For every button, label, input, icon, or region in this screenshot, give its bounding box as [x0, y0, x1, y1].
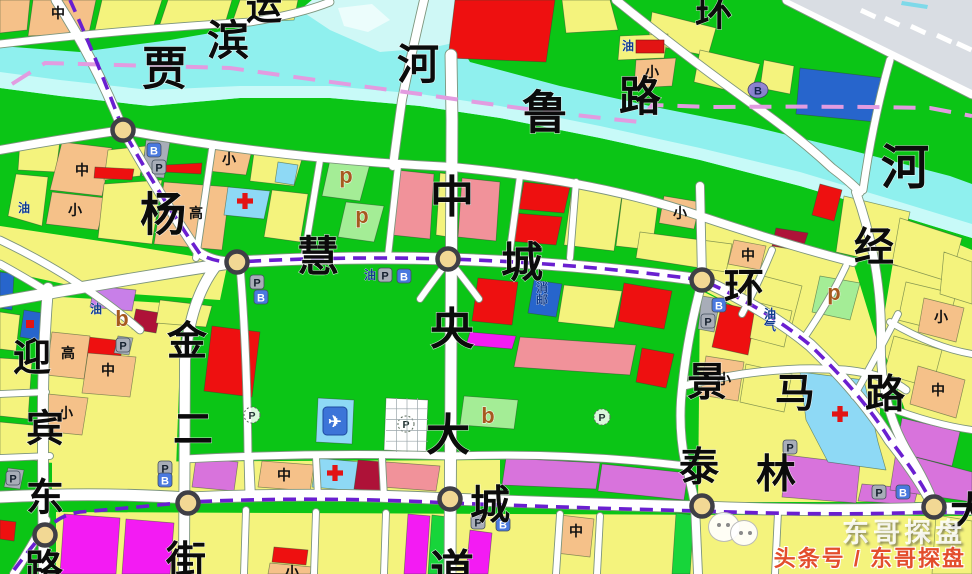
- marker-letter: P: [402, 419, 409, 431]
- land-parcel: [404, 514, 430, 574]
- road: [244, 510, 246, 574]
- road-name-char: 河: [397, 41, 439, 88]
- marker-letter: P: [875, 488, 882, 500]
- marker-letter: P: [248, 410, 255, 422]
- road-name-char: 贾: [142, 43, 188, 95]
- road-name-char: 东: [26, 478, 64, 520]
- road: [700, 186, 702, 278]
- utility-label: 邮: [536, 292, 548, 307]
- road-name-char: 迎: [13, 338, 51, 380]
- road-name-char: 环: [724, 266, 764, 310]
- road-name-char: 二: [173, 407, 213, 451]
- land-parcel: [448, 0, 555, 62]
- land-parcel: [796, 68, 884, 122]
- transit-stop-glyph: p: [339, 163, 352, 188]
- road-name-char: 路: [865, 372, 906, 416]
- marker-letter: B: [150, 146, 158, 158]
- parcel-use-label: 高: [189, 205, 203, 221]
- transit-stop-glyph: b: [481, 403, 494, 428]
- road-name-char: 马: [775, 371, 815, 415]
- marker-letter: B: [754, 86, 762, 98]
- road-name-char: 林: [756, 452, 796, 496]
- road-name-char: 央: [430, 305, 475, 354]
- land-parcel: [272, 547, 308, 565]
- roundabout-intersection: [35, 525, 56, 546]
- land-parcel: [94, 167, 134, 180]
- road-name-char: 宾: [26, 409, 64, 451]
- land-parcel: [502, 458, 600, 489]
- parcel-use-label: 小: [285, 564, 299, 574]
- land-parcel: [672, 513, 694, 574]
- marker-letter: B: [715, 301, 723, 313]
- roundabout-intersection: [438, 249, 459, 270]
- land-parcel: [204, 326, 260, 397]
- transit-stop-glyph: b: [115, 306, 128, 331]
- marker-letter: P: [155, 163, 162, 175]
- planning-map: 中中小小高小小中小中高中小中中小小油油油油油气消邮PPPPPPPPPPBBBBB…: [0, 0, 972, 574]
- utility-label: 气: [763, 318, 776, 333]
- road-name-char: 河: [881, 141, 929, 194]
- parcel-use-label: 小: [222, 151, 236, 167]
- marker-letter: P: [9, 474, 16, 486]
- parcel-use-label: 中: [569, 523, 583, 539]
- planning-map-screenshot: 中中小小高小小中小中高中小中中小小油油油油油气消邮PPPPPPPPPPBBBBB…: [0, 0, 972, 574]
- airplane-icon: ✈: [328, 414, 341, 431]
- roundabout-intersection: [113, 120, 134, 141]
- land-parcel: [275, 162, 298, 185]
- land-parcel: [382, 462, 440, 491]
- gas-station-parcel: [636, 40, 664, 53]
- road-name-char: 滨: [207, 17, 249, 64]
- land-parcel: [192, 458, 238, 491]
- road: [384, 513, 386, 574]
- roundabout-intersection: [440, 489, 461, 510]
- land-parcel: [60, 514, 120, 574]
- road-name-char: 鲁: [522, 87, 568, 139]
- marker-letter: B: [400, 272, 408, 284]
- transit-stop-glyph: p: [355, 203, 368, 228]
- roundabout-intersection: [178, 493, 199, 514]
- parcel-use-label: 中: [741, 247, 755, 263]
- roundabout-intersection: [692, 270, 713, 291]
- parcel-use-label: 中: [931, 382, 945, 398]
- road-name-char: 路: [619, 73, 662, 120]
- roundabout-intersection: [692, 496, 713, 517]
- parcel-use-label: 中: [75, 162, 89, 178]
- marker-letter: P: [381, 271, 388, 283]
- marker-letter: P: [598, 412, 605, 424]
- gas-station-label: 油: [364, 267, 376, 282]
- land-parcel: [165, 163, 202, 174]
- gas-station-label: 油: [90, 301, 102, 316]
- road: [597, 516, 600, 574]
- facility-dot: [26, 320, 34, 328]
- parcel-use-label: 高: [61, 345, 75, 361]
- marker-letter: B: [899, 488, 907, 500]
- road-name-char: 金: [166, 318, 208, 363]
- parcel-use-label: 小: [673, 205, 687, 221]
- marker-letter: B: [257, 293, 265, 305]
- marker-letter: B: [161, 476, 169, 488]
- land-parcel: [0, 0, 30, 33]
- road-name-char: 中: [430, 173, 474, 222]
- road-name-char: 大: [426, 411, 470, 460]
- land-parcel: [519, 182, 570, 213]
- road-name-char: 泰: [679, 445, 720, 489]
- hospital-cross-icon: [242, 193, 247, 209]
- road-name-char: 城: [470, 483, 510, 527]
- road-name-char: 大: [950, 490, 972, 534]
- road-name-char: 杨: [140, 189, 186, 241]
- roundabout-intersection: [924, 497, 945, 518]
- road-name-char: 道: [430, 547, 474, 574]
- road-name-char: 路: [25, 549, 64, 574]
- land-parcel: [618, 283, 672, 329]
- hospital-cross-icon: [837, 406, 842, 422]
- road: [314, 512, 316, 574]
- gas-station-label: 油: [622, 38, 634, 53]
- road-name-char: 运: [246, 0, 282, 27]
- land-parcel: [558, 285, 622, 328]
- road-name-char: 景: [687, 360, 727, 404]
- land-parcel: [562, 0, 618, 33]
- parcel-use-label: 中: [51, 5, 65, 21]
- road: [556, 514, 560, 574]
- transit-stop-glyph: p: [827, 280, 840, 305]
- road-name-char: 城: [501, 239, 543, 286]
- road-name-char: 街: [165, 539, 206, 574]
- road-name-char: 经: [854, 225, 894, 269]
- parcel-use-label: 小: [68, 202, 82, 218]
- marker-letter: P: [253, 278, 260, 290]
- marker-letter: P: [704, 317, 711, 329]
- marker-letter: P: [119, 341, 126, 353]
- gas-station-label: 油: [18, 200, 30, 215]
- parcel-use-label: 小: [934, 309, 948, 325]
- parcel-use-label: 中: [101, 362, 115, 378]
- hospital-cross-icon: [332, 465, 337, 481]
- land-parcel: [0, 520, 16, 541]
- road: [775, 512, 778, 574]
- road-name-char: 慧: [297, 233, 339, 280]
- roundabout-intersection: [227, 252, 248, 273]
- parcel-use-label: 中: [277, 467, 291, 483]
- road-name-char: 环: [695, 0, 733, 35]
